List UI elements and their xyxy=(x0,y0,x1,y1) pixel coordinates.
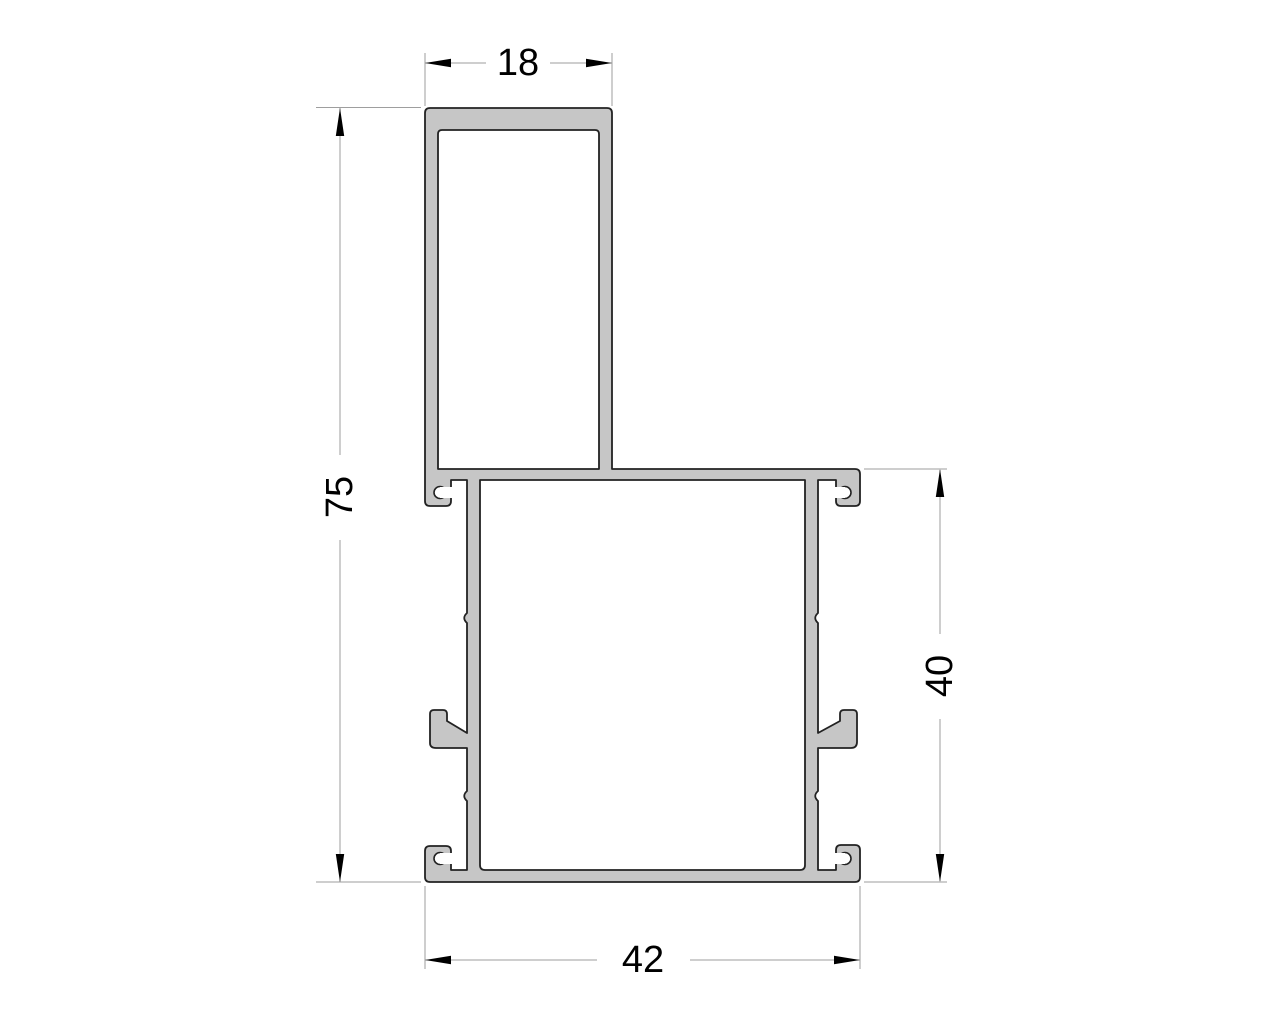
arrow-left-icon xyxy=(425,956,451,964)
profile-outline xyxy=(425,108,860,882)
arrow-left-icon xyxy=(425,59,451,67)
dimension-overall-height: 75 xyxy=(316,108,421,883)
arrow-down-icon xyxy=(336,854,344,882)
notch-opening-bottom-right xyxy=(832,853,845,864)
arrow-up-icon xyxy=(336,108,344,136)
dimension-label-right-height: 40 xyxy=(919,655,961,697)
profile xyxy=(425,108,860,882)
dimension-label-top-width: 18 xyxy=(497,42,539,84)
notch-opening-bottom-left xyxy=(440,853,453,864)
arrow-up-icon xyxy=(936,469,944,497)
drawing-canvas: 18 75 40 42 xyxy=(0,0,1280,1024)
arrow-down-icon xyxy=(936,854,944,882)
notch-opening-top-left xyxy=(440,487,453,498)
dimension-right-height: 40 xyxy=(864,469,961,882)
notch-opening-top-right xyxy=(832,487,845,498)
arrow-right-icon xyxy=(586,59,612,67)
dimension-top-width: 18 xyxy=(425,42,612,106)
dimension-bottom-width: 42 xyxy=(425,886,860,981)
dimension-label-overall-height: 75 xyxy=(319,476,361,518)
arrow-right-icon xyxy=(834,956,860,964)
dimension-label-bottom-width: 42 xyxy=(622,939,664,981)
